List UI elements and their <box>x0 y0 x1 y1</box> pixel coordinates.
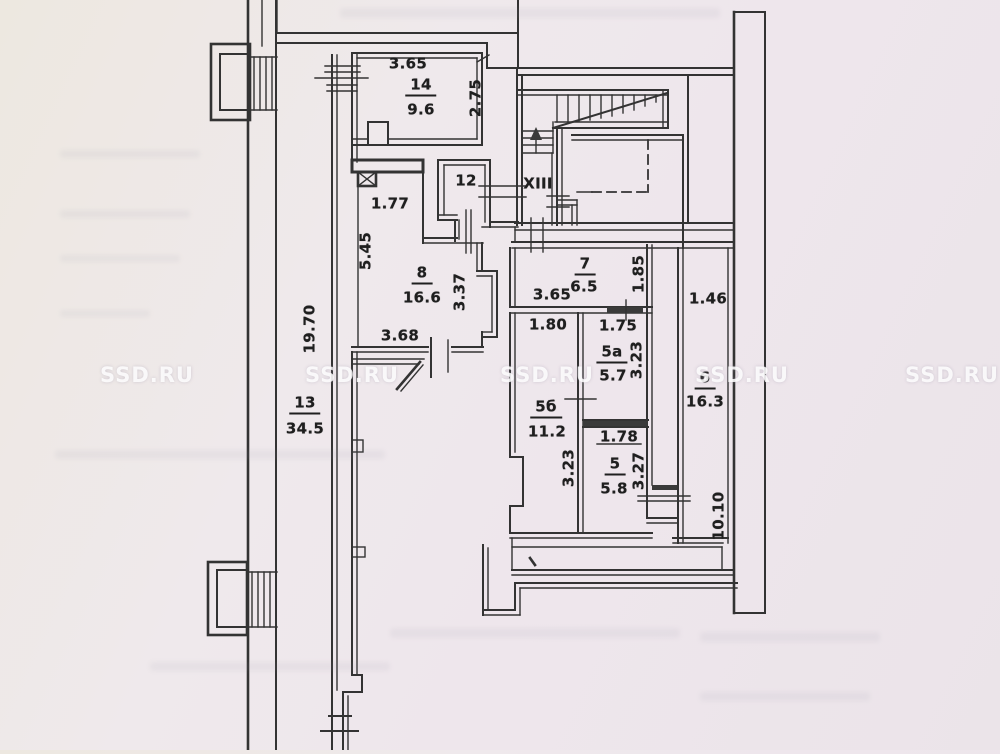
dim-2-75: 2.75 <box>469 79 484 117</box>
watermark: SSD.RU <box>100 363 194 387</box>
room-8-number: 8 <box>412 266 433 285</box>
room-8-area: 16.6 <box>403 291 441 306</box>
dim-3-65-room7: 3.65 <box>533 288 571 303</box>
dim-1-46: 1.46 <box>689 292 727 307</box>
dim-1-85: 1.85 <box>632 255 647 293</box>
room-5b-number: 5б <box>530 400 562 419</box>
dim-1-78: 1.78 <box>600 430 638 445</box>
room-5-number: 5 <box>605 457 626 476</box>
dim-3-68: 3.68 <box>381 329 419 344</box>
watermark: SSD.RU <box>695 363 789 387</box>
stair-hall-XIII: XIII <box>523 177 553 192</box>
room-5a-number: 5а <box>596 345 627 364</box>
room-5b-area: 11.2 <box>528 425 566 440</box>
dim-3-65-room14: 3.65 <box>389 57 427 72</box>
room-14-number: 14 <box>405 78 436 97</box>
room-5a-area: 5.7 <box>599 369 626 384</box>
room-13-area: 34.5 <box>286 422 324 437</box>
room-14-area: 9.6 <box>407 103 434 118</box>
watermark: SSD.RU <box>500 363 594 387</box>
room-7-number: 7 <box>575 257 596 276</box>
watermark: SSD.RU <box>305 363 399 387</box>
dim-19-70: 19.70 <box>303 305 318 354</box>
room-5-area: 5.8 <box>600 482 627 497</box>
dim-5-45: 5.45 <box>359 232 374 270</box>
room-6-area: 16.3 <box>686 395 724 410</box>
dim-10-10: 10.10 <box>712 492 727 541</box>
room-12-number: 12 <box>455 174 476 189</box>
room-13-number: 13 <box>289 396 320 415</box>
dim-1-77: 1.77 <box>371 197 409 212</box>
dim-3-37: 3.37 <box>453 273 468 311</box>
room-7-area: 6.5 <box>570 280 597 295</box>
watermark: SSD.RU <box>905 363 999 387</box>
dim-3-23-5a: 3.23 <box>630 341 645 379</box>
dim-1-75: 1.75 <box>599 319 637 334</box>
dim-3-27: 3.27 <box>632 452 647 490</box>
dim-1-80: 1.80 <box>529 318 567 333</box>
dim-3-23-5b: 3.23 <box>562 449 577 487</box>
